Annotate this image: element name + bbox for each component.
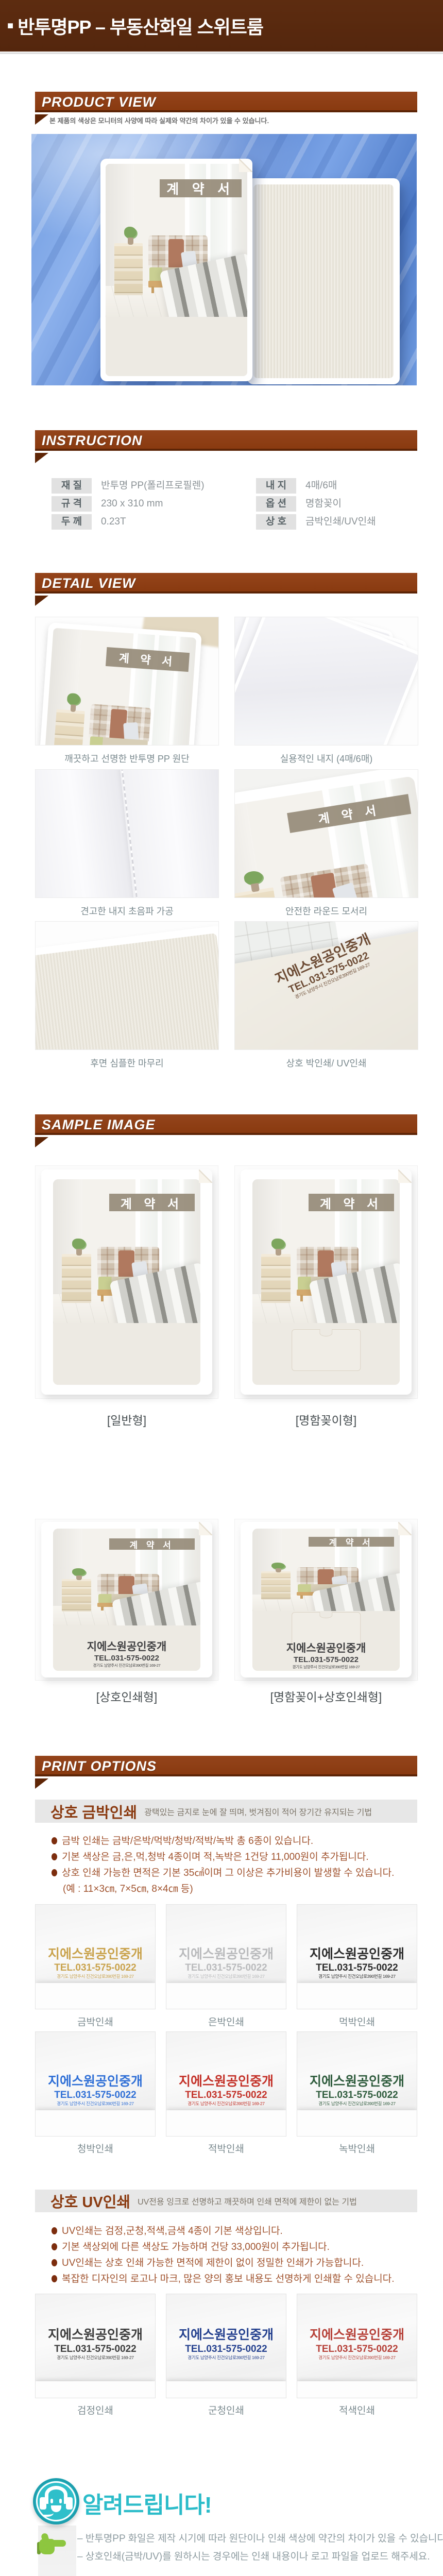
gold-print-desc: 광택있는 금지로 눈에 잘 띄며, 벗겨짐이 적어 장기간 유지되는 기법 (144, 1805, 372, 1818)
spec-value: 4매/6매 (305, 478, 337, 494)
notice-group-product: 반투명PP 화일은 제작 시기에 따라 원단이나 인쇄 색상에 약간의 차이가 … (77, 2530, 428, 2566)
section-bar-product-view: PRODUCT VIEW (35, 92, 417, 112)
section-bar-detail-view: DETAIL VIEW (35, 573, 417, 594)
notice-line: 반투명PP 화일은 제작 시기에 따라 원단이나 인쇄 색상에 약간의 차이가 … (77, 2530, 428, 2548)
product-hero-image: 계 약 서 (31, 134, 417, 385)
spec-value: 반투명 PP(폴리프로필렌) (101, 478, 205, 494)
section-bar-print-options: PRINT OPTIONS (35, 1756, 417, 1776)
detail-caption: 상호 박인쇄/ UV인쇄 (234, 1056, 418, 1070)
foil-sample-label: 적박인쇄 (166, 2141, 286, 2155)
spec-value: 230 x 310 mm (101, 496, 163, 512)
foil-sample-blue: 지에스원공인중개TEL.031-575-0022경기도 남양주시 진건오남로39… (35, 2031, 156, 2137)
section-bar-sample-image: SAMPLE IMAGE (35, 1114, 417, 1135)
section-bar-instruction: INSTRUCTION (35, 430, 417, 451)
uv-print-heading: 상호 UV인쇄 UV전용 잉크로 선명하고 깨끗하며 인쇄 면적에 제한이 없는… (35, 2190, 417, 2212)
page-header: ■ 반투명PP – 부동산화일 스위트룸 (0, 0, 443, 52)
gold-bullet-example: (예 : 11×3㎝, 7×5㎝, 8×4㎝ 등) (63, 1881, 423, 1895)
contract-cover-label: 계 약 서 (109, 1538, 195, 1550)
folder-back-view (247, 178, 400, 384)
foil-sample-silver: 지에스원공인중개TEL.031-575-0022경기도 남양주시 진건오남로39… (166, 1904, 286, 2009)
spec-value: 0.23T (101, 514, 126, 530)
contract-cover-label: 계 약 서 (309, 1194, 394, 1211)
gold-bullet: 금박 인쇄는 금박/은박/먹박/청박/적박/녹박 총 6종이 있습니다. (52, 1833, 412, 1847)
spec-label: 옵 션 (256, 496, 296, 512)
uv-bullet: UV인쇄는 검정,군청,적색,금색 4종이 기본 색상입니다. (52, 2223, 412, 2237)
uv-sample-red: 지에스원공인중개TEL.031-575-0022경기도 남양주시 진건오남로39… (297, 2294, 417, 2398)
foil-sample-gold: 지에스원공인중개TEL.031-575-0022경기도 남양주시 진건오남로39… (35, 1904, 156, 2009)
spec-value: 명함꽂이 (305, 496, 342, 512)
company-print-sample: 지에스원공인중개 TEL.031-575-0022 경기도 남양주시 진건오남로… (252, 1642, 400, 1669)
gold-bullet: 상호 인쇄 가능한 면적은 기본 35㎠이며 그 이상은 추가비용이 발생할 수… (52, 1865, 412, 1879)
color-disclaimer-note: 본 제품의 색상은 모니터의 사양에 따라 실제와 약간의 차이가 있을 수 있… (49, 115, 269, 125)
plant (123, 227, 138, 245)
detail-image-round-corner: 계 약 서 (234, 769, 418, 898)
detail-image-pp-fabric: 계 약 서 (35, 617, 219, 745)
headset-agent-icon (33, 2478, 79, 2524)
foil-sample-label: 청박인쇄 (35, 2141, 156, 2155)
detail-caption: 안전한 라운드 모서리 (234, 904, 418, 918)
uv-bullet: 복잡한 디자인의 로고나 마크, 많은 양의 홍보 내용도 선명하게 인쇄할 수… (52, 2271, 412, 2285)
sample-caption: [명함꽂이형] (234, 1411, 418, 1428)
folder-front-view: 계 약 서 (100, 159, 252, 381)
foil-sample-black: 지에스원공인중개TEL.031-575-0022경기도 남양주시 진건오남로39… (297, 1904, 417, 2009)
detail-caption: 실용적인 내지 (4매/6매) (234, 752, 418, 765)
spec-label: 내 지 (256, 478, 296, 494)
uv-print-title: 상호 UV인쇄 (50, 2190, 130, 2212)
striped-back-texture (253, 184, 394, 378)
detail-image-name-print: 지에스원공인중개 TEL.031-575-0022 경기도 남양주시 진건오남로… (234, 921, 418, 1050)
uv-bullet: UV인쇄는 상호 인쇄 가능한 면적에 제한이 없이 정밀한 인쇄가 가능합니다… (52, 2255, 412, 2269)
page-title: 반투명PP – 부동산화일 스위트룸 (18, 12, 263, 39)
green-hand-icon (37, 2533, 67, 2556)
spec-label: 두 께 (52, 514, 92, 530)
sample-caption: [상호인쇄형] (35, 1687, 218, 1705)
cover-sheet: 계 약 서 (106, 164, 247, 376)
sample-basic-type: 계 약 서 (35, 1165, 218, 1399)
detail-caption: 견고한 내지 초음파 가공 (35, 904, 219, 918)
foil-sample-label: 은박인쇄 (166, 2014, 286, 2028)
gold-print-title: 상호 금박인쇄 (50, 1801, 137, 1822)
uv-sample-label: 군청인쇄 (166, 2403, 286, 2417)
spec-label: 규 격 (52, 496, 92, 512)
foil-sample-label: 먹박인쇄 (297, 2014, 417, 2028)
uv-sample-label: 검정인쇄 (35, 2403, 156, 2417)
foil-sample-green: 지에스원공인중개TEL.031-575-0022경기도 남양주시 진건오남로39… (297, 2031, 417, 2137)
foil-sample-red: 지에스원공인중개TEL.031-575-0022경기도 남양주시 진건오남로39… (166, 2031, 286, 2137)
contract-cover-label: 계 약 서 (160, 179, 242, 198)
sample-pocket-nameprint-type: 계 약 서 지에스원공인중개 TEL.031-575-0022 경기도 남양주시… (234, 1519, 418, 1681)
contract-cover-label: 계 약 서 (109, 1194, 195, 1211)
detail-image-back-finish (35, 921, 219, 1050)
detail-image-ultrasonic-binding (35, 769, 219, 898)
sample-nameprint-type: 계 약 서 지에스원공인중개 TEL.031-575-0022 경기도 남양주시… (35, 1519, 218, 1681)
drawer-chest (114, 243, 143, 295)
folded-corner (239, 159, 252, 172)
uv-bullet: 기본 색상외에 다른 색상도 가능하며 건당 33,000원이 추가됩니다. (52, 2239, 412, 2253)
detail-image-inner-sheets (234, 617, 418, 745)
foil-sample-label: 금박인쇄 (35, 2014, 156, 2028)
gold-print-heading: 상호 금박인쇄 광택있는 금지로 눈에 잘 띄며, 벗겨짐이 적어 장기간 유지… (35, 1800, 417, 1823)
square-bullet-icon: ■ (7, 20, 13, 32)
room-photo: 계 약 서 (106, 164, 247, 317)
folded-corner (398, 1170, 412, 1183)
folded-corner (199, 1522, 212, 1535)
sample-caption: [일반형] (35, 1411, 218, 1428)
gold-bullet: 기본 색상은 금,은,먹,청박 4종이며 적,녹박은 1건당 11,000원이 … (52, 1849, 412, 1863)
spec-label: 재 질 (52, 478, 92, 494)
contract-cover-label: 계 약 서 (309, 1537, 394, 1547)
product-detail-page: ■ 반투명PP – 부동산화일 스위트룸 PRODUCT VIEW 본 제품의 … (0, 0, 443, 2576)
spec-label: 상 호 (256, 514, 296, 530)
uv-sample-black: 지에스원공인중개TEL.031-575-0022경기도 남양주시 진건오남로39… (35, 2294, 156, 2398)
uv-sample-label: 적색인쇄 (297, 2403, 417, 2417)
spec-value: 금박인쇄/UV인쇄 (305, 514, 376, 530)
sample-cardpocket-type: 계 약 서 (234, 1165, 418, 1399)
uv-print-desc: UV전용 잉크로 선명하고 깨끗하며 인쇄 면적에 제한이 없는 기법 (138, 2195, 357, 2207)
header-divider (0, 53, 443, 54)
company-print-sample: 지에스원공인중개 TEL.031-575-0022 경기도 남양주시 진건오남로… (53, 1640, 200, 1668)
folded-corner (398, 1522, 412, 1535)
uv-sample-navy: 지에스원공인중개TEL.031-575-0022경기도 남양주시 진건오남로39… (166, 2294, 286, 2398)
foil-sample-label: 녹박인쇄 (297, 2141, 417, 2155)
detail-caption: 후면 심플한 마무리 (35, 1056, 219, 1070)
detail-caption: 깨끗하고 선명한 반투명 PP 원단 (35, 752, 219, 765)
sample-caption: [명함꽂이+상호인쇄형] (234, 1687, 418, 1705)
folded-corner (199, 1170, 212, 1183)
notice-line: 상호인쇄(금박/UV)를 원하시는 경우에는 인쇄 내용이나 로고 파일을 업로… (77, 2548, 428, 2566)
notice-title: 알려드립니다! (82, 2486, 212, 2519)
business-card-pocket (292, 1329, 361, 1371)
